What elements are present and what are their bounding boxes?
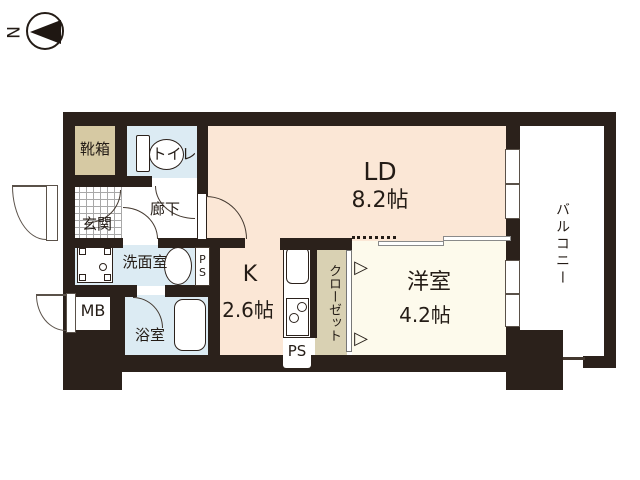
open-partition-dotted-line — [352, 236, 396, 239]
room-label-washroom: 洗面室 — [108, 254, 182, 271]
room-size-living-dining: 8.2帖 — [332, 189, 428, 213]
pipe-space-upper: PS — [195, 247, 210, 286]
washing-machine-corner-icon — [79, 248, 86, 255]
room-label-entrance: 玄関 — [73, 216, 121, 233]
bathtub-icon — [174, 299, 206, 351]
wall-hallway-washroom-left — [63, 238, 123, 248]
wall-below-toilet — [127, 176, 152, 187]
wall-counter-closet — [310, 243, 317, 338]
balcony-railing-line — [563, 357, 585, 360]
wall-bottom — [122, 355, 518, 372]
floor-plan: ▷ ▷ PS PS 靴箱 トイレ 玄関 廊下 LD 8.2帖 K 2.6帖 洋室… — [0, 0, 640, 480]
entrance-door-leaf — [46, 185, 58, 241]
wall-below-shoebox — [63, 175, 127, 187]
washing-machine-tap-icon — [99, 263, 107, 271]
north-arrow-icon — [30, 20, 61, 44]
wall-balcony-right — [604, 112, 616, 368]
window-sash-tick — [505, 293, 520, 295]
sliding-door-arrow-icon: ▷ — [351, 330, 371, 348]
wall-balcony-corner — [583, 356, 616, 368]
room-label-bathroom: 浴室 — [122, 327, 178, 344]
room-label-meter-box: MB — [73, 302, 113, 320]
western-room-floor — [352, 241, 508, 357]
sliding-door-arrow-icon: ▷ — [351, 259, 371, 277]
room-size-western: 4.2帖 — [383, 304, 467, 326]
wall-pillar-bottom-right — [506, 330, 563, 390]
washing-machine-corner-icon — [104, 274, 111, 281]
washing-machine-corner-icon — [79, 274, 86, 281]
entrance-door-arc — [12, 186, 46, 240]
stove-burner-icon — [289, 313, 299, 323]
window-sash-tick — [505, 183, 520, 185]
kitchen-sink-icon — [286, 247, 309, 284]
room-label-western: 洋室 — [393, 271, 465, 295]
room-label-balcony: バルコニー — [552, 188, 572, 300]
sliding-partition-panel — [378, 241, 444, 246]
stove-burner-icon — [297, 302, 307, 312]
pipe-space-lower-label: PS — [283, 343, 311, 360]
room-size-kitchen: 2.6帖 — [215, 299, 281, 321]
north-label: N — [6, 21, 25, 43]
room-label-closet: クローゼット — [321, 250, 343, 356]
wall-washroom-bottom-right — [165, 285, 210, 297]
room-label-living-dining: LD — [348, 158, 412, 186]
room-label-shoebox: 靴箱 — [71, 141, 119, 158]
sliding-partition-panel — [443, 236, 511, 241]
room-label-hallway: 廊下 — [141, 201, 189, 218]
room-label-toilet: トイレ — [147, 146, 201, 163]
meter-box-door-arc — [36, 295, 66, 331]
wall-top — [63, 112, 616, 126]
room-label-kitchen: K — [235, 263, 265, 287]
